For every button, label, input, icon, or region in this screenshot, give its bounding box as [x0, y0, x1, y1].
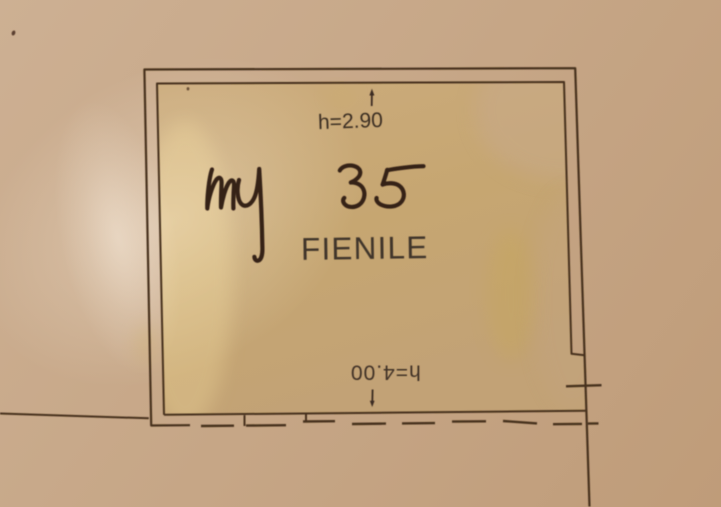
svg-text:FIENILE: FIENILE — [301, 229, 429, 267]
svg-text:h=2.90: h=2.90 — [318, 109, 384, 134]
svg-text:h=4.00: h=4.00 — [350, 360, 421, 383]
